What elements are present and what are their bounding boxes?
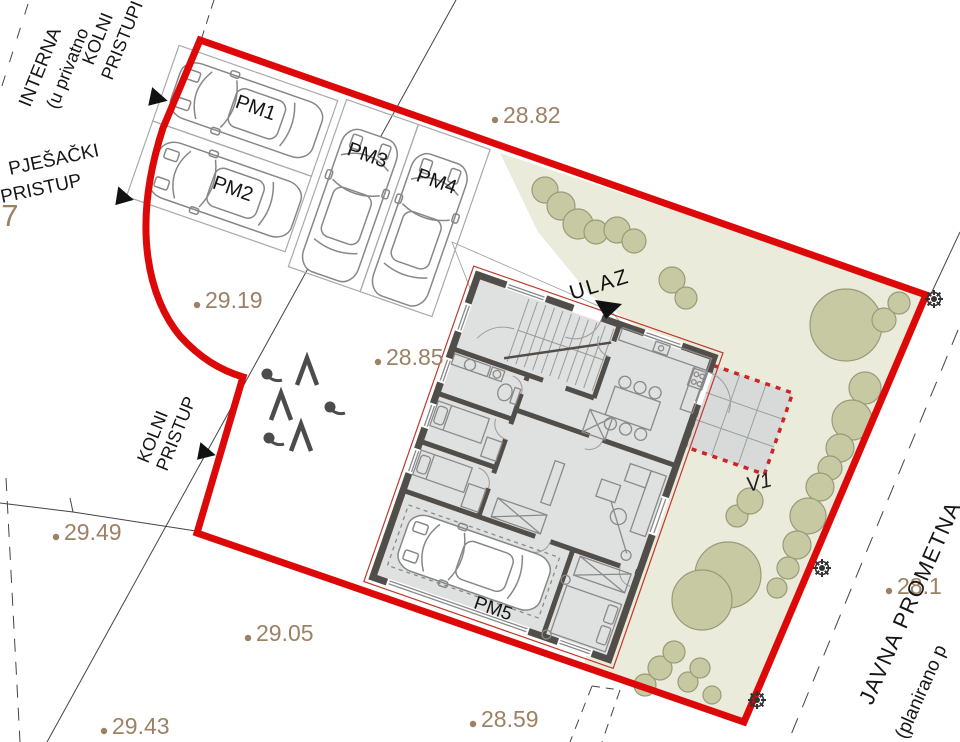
javna-prometna-label: JAVNA PROMETNA <box>854 497 960 708</box>
elevation-dot-icon <box>53 534 59 540</box>
pjesacki-line1: PJEŠAČKI <box>6 139 100 180</box>
elevation-point: 29.49 <box>53 519 122 545</box>
utility-pole-icon <box>813 559 831 577</box>
bush-icon <box>262 369 283 381</box>
tree-icon <box>675 287 697 309</box>
tree-icon <box>849 372 881 404</box>
conifer-symbols <box>262 358 346 451</box>
tree-icon <box>806 473 834 501</box>
elevation-point: 28.59 <box>470 706 539 732</box>
elevation-label: 29.19 <box>205 287 263 313</box>
elevation-point: 28.85 <box>375 344 444 370</box>
kolni-pristupi-arrow <box>148 87 170 109</box>
tree-icon <box>767 578 787 598</box>
elevation-dot-icon <box>194 302 200 308</box>
conifer-icon <box>271 393 291 420</box>
elevation-dot-icon <box>886 588 892 594</box>
elevation-dot-icon <box>470 721 476 727</box>
elevation-dot-icon <box>245 635 251 641</box>
cadastral-dashed-corner <box>201 0 214 40</box>
elevation-point: 29.43 <box>101 713 170 739</box>
site-plan-svg: PM1 PM2 PM3 PM4 <box>0 0 960 742</box>
tree-icon <box>783 531 811 559</box>
elevation-point: 28.82 <box>492 102 561 128</box>
elevation-label: 28.82 <box>503 102 561 128</box>
cadastral-dashed-left <box>6 478 20 742</box>
elevation-point: 29.05 <box>245 620 314 646</box>
tree-icon <box>810 289 882 361</box>
tree-icon <box>690 658 710 678</box>
utility-corridor-dashes <box>570 686 620 742</box>
conifer-icon <box>291 424 311 451</box>
tree-icon <box>888 292 910 314</box>
elevation-label: 29.43 <box>112 713 170 739</box>
elevation-label: 28.59 <box>481 706 539 732</box>
tree-icon <box>790 498 826 534</box>
elevation-point: 29.19 <box>194 287 263 313</box>
parking-area: PM1 PM2 PM3 PM4 <box>122 42 490 317</box>
elevation-label: 29.49 <box>64 519 122 545</box>
tree-icon <box>622 229 646 253</box>
tree-icon <box>703 686 721 704</box>
elevation-label: 28.85 <box>386 344 444 370</box>
javna-prometna-sub-label: (planirano p <box>891 642 951 742</box>
elevation-dot-icon <box>375 359 381 365</box>
tree-icon <box>663 641 685 663</box>
utility-pole-icon <box>748 691 766 709</box>
elevation-label: 29.05 <box>256 620 314 646</box>
pjesacki-arrow <box>114 186 136 208</box>
elevation-dot-icon <box>101 728 107 734</box>
site-plan-page: PM1 PM2 PM3 PM4 <box>0 0 960 742</box>
kolni-pristup-arrow <box>196 442 218 464</box>
bush-icon <box>325 402 346 414</box>
bush-icon <box>264 433 285 445</box>
utility-pole-icon <box>925 290 943 308</box>
tree-icon <box>777 557 799 579</box>
conifer-icon <box>297 358 317 385</box>
tree-icon <box>672 570 732 630</box>
elevation-dot-icon <box>492 117 498 123</box>
